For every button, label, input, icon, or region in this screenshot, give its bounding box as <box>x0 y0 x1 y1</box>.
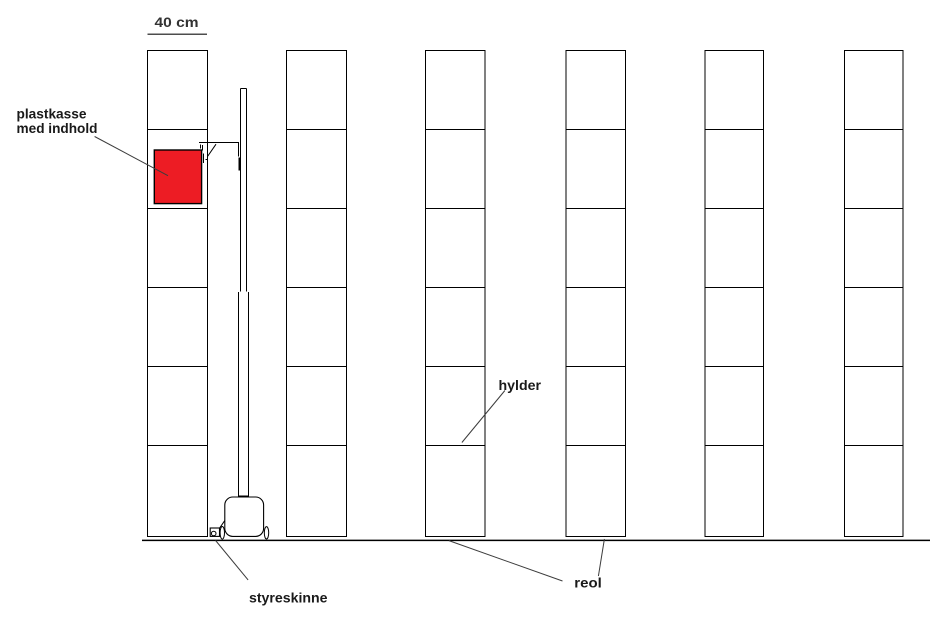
svg-text:med indhold: med indhold <box>17 120 98 136</box>
svg-text:hylder: hylder <box>499 377 542 393</box>
svg-text:40 cm: 40 cm <box>155 14 199 30</box>
svg-text:reol: reol <box>574 574 602 590</box>
svg-text:styreskinne: styreskinne <box>249 590 328 606</box>
